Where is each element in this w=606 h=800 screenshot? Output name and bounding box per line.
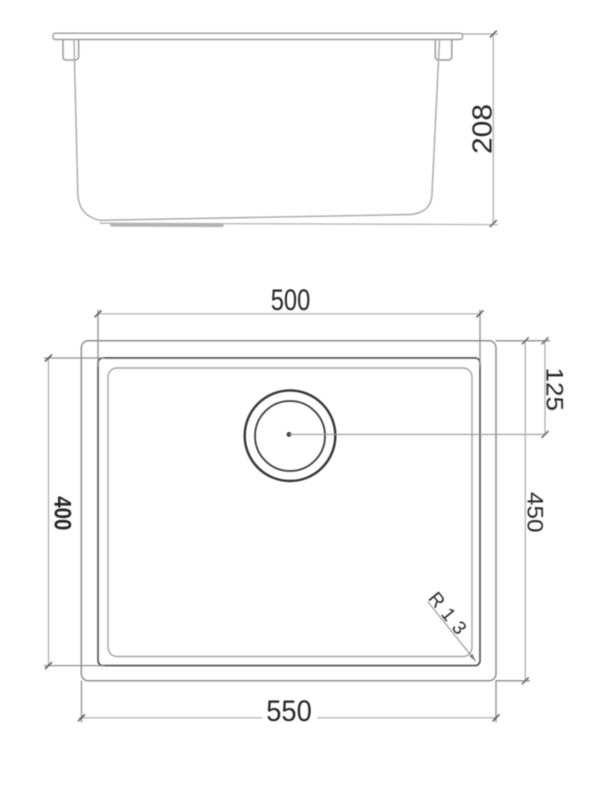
svg-text:125: 125 [541, 368, 568, 412]
svg-text:208: 208 [467, 104, 498, 154]
svg-text:550: 550 [266, 695, 312, 728]
svg-text:450: 450 [523, 492, 548, 533]
svg-text:400: 400 [49, 496, 76, 530]
svg-text:500: 500 [271, 284, 311, 317]
